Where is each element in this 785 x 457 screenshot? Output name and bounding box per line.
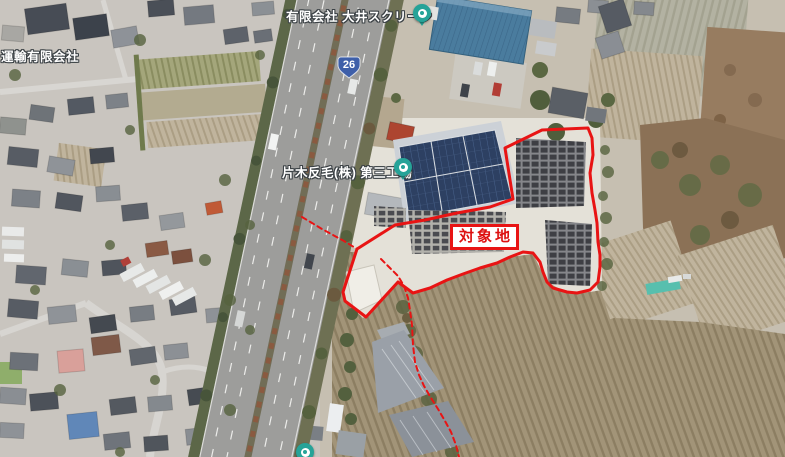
target-site-label: 対象地 [450,224,519,250]
poi-pin-bottom-partial-icon[interactable] [296,443,314,457]
map-label-katagi-factory[interactable]: 片木反毛(株) 第三工場 [282,162,412,181]
map-label-transport-company[interactable]: 運輸有限会社 [1,46,79,65]
pin-circle [413,4,431,22]
poi-pin-katagi-factory-icon[interactable] [394,158,412,176]
poi-pin-oi-screen-icon[interactable] [413,4,431,22]
pin-circle [296,443,314,457]
map-viewport[interactable]: 運輸有限会社 有限会社 大井スクリーン 片木反毛(株) 第三工場 対象地 26 [0,0,785,457]
satellite-imagery [0,0,785,457]
map-label-oi-screen[interactable]: 有限会社 大井スクリーン [286,6,432,25]
pin-circle [394,158,412,176]
route-number: 26 [336,59,362,71]
route-26-badge-icon: 26 [336,56,362,80]
